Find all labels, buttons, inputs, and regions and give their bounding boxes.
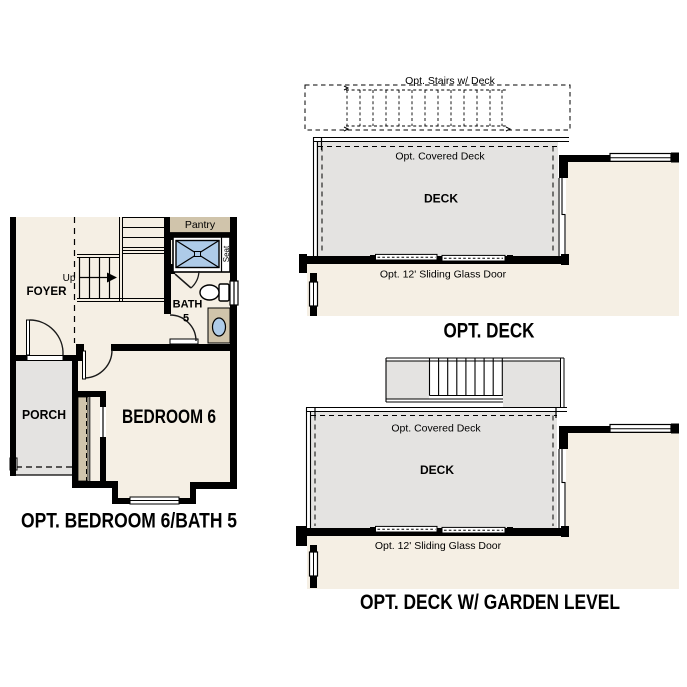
svg-text:OPT. DECK W/ GARDEN LEVEL: OPT. DECK W/ GARDEN LEVEL <box>360 591 620 614</box>
svg-text:BATH: BATH <box>173 299 203 311</box>
svg-text:5: 5 <box>183 313 189 325</box>
svg-text:DECK: DECK <box>420 463 454 477</box>
svg-text:Pantry: Pantry <box>185 219 216 231</box>
svg-text:Opt. 12' Sliding Glass Door: Opt. 12' Sliding Glass Door <box>380 269 507 281</box>
svg-text:DECK: DECK <box>424 192 458 206</box>
svg-text:Seat: Seat <box>222 245 231 262</box>
svg-text:Up: Up <box>63 273 76 284</box>
svg-text:Opt. Covered Deck: Opt. Covered Deck <box>395 151 485 163</box>
svg-text:FOYER: FOYER <box>27 285 68 298</box>
svg-text:Opt. 12' Sliding Glass Door: Opt. 12' Sliding Glass Door <box>375 540 502 552</box>
svg-text:Opt. Covered Deck: Opt. Covered Deck <box>391 423 481 435</box>
svg-text:BEDROOM 6: BEDROOM 6 <box>122 407 216 428</box>
svg-text:OPT. BEDROOM 6/BATH 5: OPT. BEDROOM 6/BATH 5 <box>21 510 237 533</box>
svg-text:PORCH: PORCH <box>22 408 66 422</box>
svg-text:OPT. DECK: OPT. DECK <box>444 320 535 343</box>
